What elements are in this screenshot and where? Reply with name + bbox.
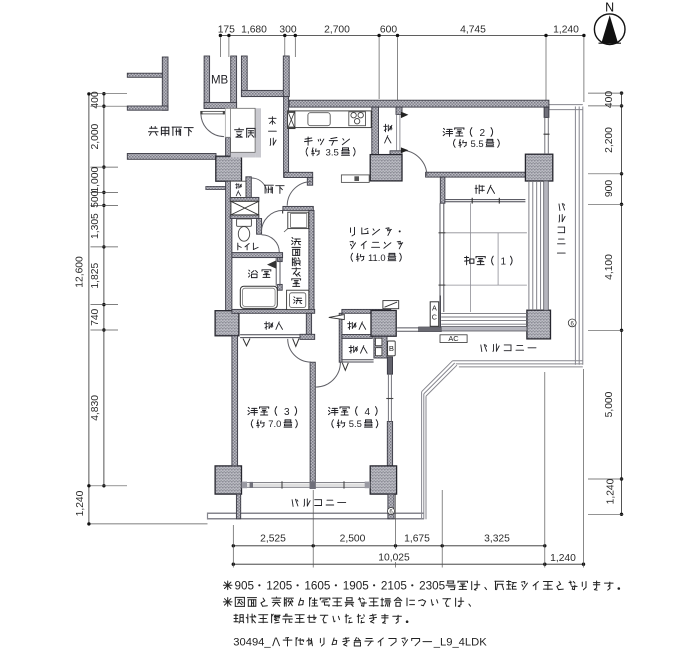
svg-text:1205: 1205 xyxy=(266,579,293,592)
svg-text:MB: MB xyxy=(211,75,229,87)
svg-text:4,745: 4,745 xyxy=(460,25,486,36)
svg-text:1: 1 xyxy=(501,256,507,267)
svg-text:2305: 2305 xyxy=(419,579,446,592)
svg-text:1,240: 1,240 xyxy=(550,553,576,564)
svg-text:AC: AC xyxy=(448,334,459,343)
svg-text:400: 400 xyxy=(90,91,101,108)
svg-text:30494_: 30494_ xyxy=(233,636,271,648)
svg-text:1,825: 1,825 xyxy=(90,263,101,289)
svg-text:900: 900 xyxy=(604,180,615,197)
svg-text:5,000: 5,000 xyxy=(604,391,615,417)
svg-text:5.5: 5.5 xyxy=(349,418,362,429)
svg-text:2,000: 2,000 xyxy=(90,123,101,149)
svg-text:1,680: 1,680 xyxy=(241,25,267,36)
svg-text:12,600: 12,600 xyxy=(75,256,86,288)
svg-text:400: 400 xyxy=(604,91,615,108)
svg-text:600: 600 xyxy=(380,25,397,36)
svg-text:1,240: 1,240 xyxy=(75,490,86,516)
svg-text:740: 740 xyxy=(90,308,101,325)
svg-text:A: A xyxy=(432,304,437,313)
svg-text:10,025: 10,025 xyxy=(378,553,410,564)
svg-text:N: N xyxy=(605,1,614,15)
svg-text:1,675: 1,675 xyxy=(404,534,430,545)
svg-text:905: 905 xyxy=(235,579,255,592)
svg-text:3,325: 3,325 xyxy=(484,534,510,545)
svg-text:3.5: 3.5 xyxy=(326,147,339,158)
svg-text:_L9_4LDK: _L9_4LDK xyxy=(433,636,487,648)
svg-text:5.5: 5.5 xyxy=(471,138,484,149)
svg-text:11.0: 11.0 xyxy=(368,252,386,263)
svg-text:300: 300 xyxy=(279,25,296,36)
svg-text:1605: 1605 xyxy=(304,579,331,592)
svg-text:C: C xyxy=(432,313,437,322)
svg-text:1,000: 1,000 xyxy=(90,167,101,193)
svg-text:1,240: 1,240 xyxy=(606,478,617,504)
svg-text:2,525: 2,525 xyxy=(260,534,286,545)
svg-text:4: 4 xyxy=(365,407,371,418)
svg-text:4,100: 4,100 xyxy=(604,254,615,280)
svg-text:1,305: 1,305 xyxy=(90,213,101,239)
svg-text:2,500: 2,500 xyxy=(340,534,366,545)
svg-text:1905: 1905 xyxy=(343,579,370,592)
svg-text:2,700: 2,700 xyxy=(324,25,350,36)
svg-text:2,200: 2,200 xyxy=(604,127,615,153)
svg-text:7.0: 7.0 xyxy=(268,418,281,429)
svg-text:2105: 2105 xyxy=(381,579,408,592)
svg-text:500: 500 xyxy=(90,190,101,207)
svg-text:4,830: 4,830 xyxy=(90,395,101,421)
svg-text:175: 175 xyxy=(218,25,235,36)
svg-text:1,240: 1,240 xyxy=(553,25,579,36)
svg-text:3: 3 xyxy=(284,407,290,418)
svg-text:B: B xyxy=(389,344,394,353)
